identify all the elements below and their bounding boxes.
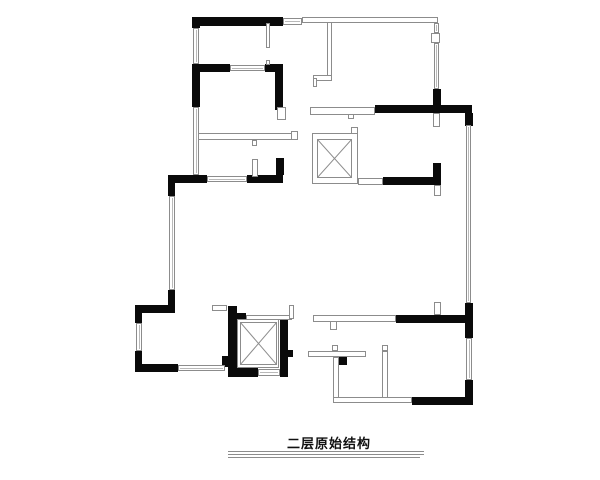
- window-center-line: [469, 340, 470, 378]
- wall-segment: [465, 303, 473, 338]
- wall-segment: [200, 64, 230, 72]
- wall-segment: [135, 351, 142, 364]
- window-center-line: [196, 30, 197, 62]
- partition-line: [252, 140, 257, 146]
- partition-line: [266, 23, 270, 48]
- partition-line: [333, 357, 339, 398]
- wall-segment: [396, 315, 466, 323]
- partition-line: [310, 107, 375, 115]
- wall-segment: [276, 158, 284, 175]
- window-center-line: [172, 198, 173, 288]
- window-symbol: [466, 125, 471, 303]
- partition-line: [266, 60, 270, 65]
- door-jamb: [434, 302, 441, 315]
- window-symbol: [193, 28, 199, 64]
- window-symbol: [434, 23, 439, 33]
- window-center-line: [196, 109, 197, 173]
- window-center-line: [180, 368, 223, 369]
- partition-line: [252, 159, 258, 177]
- window-center-line: [232, 68, 263, 69]
- door-jamb: [277, 107, 286, 120]
- partition-line: [212, 305, 227, 311]
- wall-segment: [135, 305, 175, 313]
- title-rule: [228, 451, 424, 452]
- window-symbol: [434, 43, 439, 89]
- partition-line: [198, 133, 296, 140]
- wall-segment: [433, 89, 441, 105]
- window-symbol: [466, 338, 472, 380]
- wall-segment: [275, 64, 283, 110]
- partition-line: [313, 315, 396, 322]
- window-symbol: [283, 18, 302, 25]
- door-jamb: [431, 33, 440, 43]
- wall-segment: [168, 290, 175, 305]
- window-center-line: [436, 25, 437, 31]
- partition-line: [289, 305, 294, 319]
- door-jamb: [434, 185, 441, 196]
- wall-segment: [168, 183, 175, 196]
- partition-line: [358, 178, 383, 185]
- door-jamb: [433, 113, 440, 127]
- shaft-x-mark: [317, 139, 352, 178]
- title-rule: [228, 457, 420, 458]
- wall-segment: [192, 17, 200, 28]
- shaft-x-mark: [240, 322, 277, 365]
- wall-segment: [433, 163, 441, 177]
- window-symbol: [178, 365, 225, 371]
- wall-segment: [135, 313, 142, 323]
- window-symbol: [258, 369, 280, 376]
- partition-line: [313, 78, 317, 87]
- wall-segment: [280, 368, 288, 377]
- partition-line: [382, 345, 388, 351]
- wall-segment: [383, 177, 441, 185]
- partition-line: [327, 22, 332, 78]
- title-rule: [228, 454, 424, 455]
- window-symbol: [230, 65, 265, 71]
- window-symbol: [169, 196, 175, 290]
- wall-segment: [192, 64, 200, 107]
- wall-segment: [228, 368, 258, 377]
- wall-segment: [375, 105, 472, 113]
- window-center-line: [139, 325, 140, 349]
- window-center-line: [436, 45, 437, 87]
- partition-line: [382, 351, 388, 398]
- partition-line: [291, 131, 298, 140]
- partition-line: [333, 397, 412, 403]
- wall-segment: [168, 175, 207, 183]
- window-symbol: [207, 176, 247, 182]
- partition-line: [348, 114, 354, 119]
- window-center-line: [285, 21, 300, 22]
- wall-segment: [338, 356, 347, 365]
- partition-line: [302, 17, 438, 23]
- floor-plan: 二层原始结构: [0, 0, 600, 480]
- window-center-line: [260, 372, 278, 373]
- window-symbol: [193, 107, 199, 175]
- window-center-line: [209, 179, 245, 180]
- wall-segment: [412, 397, 472, 405]
- wall-segment: [135, 364, 178, 372]
- window-symbol: [136, 323, 142, 351]
- partition-line: [330, 321, 337, 330]
- window-center-line: [468, 127, 469, 301]
- plan-title: 二层原始结构: [287, 433, 371, 452]
- wall-segment: [288, 350, 293, 357]
